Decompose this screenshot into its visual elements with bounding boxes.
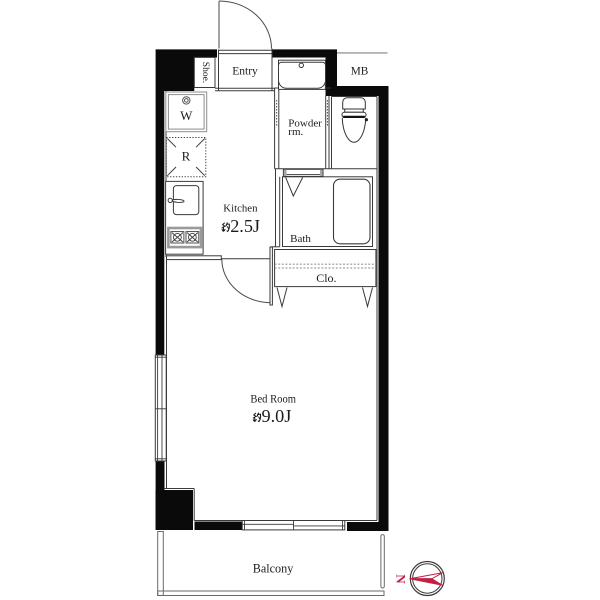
- svg-text:Shoe.: Shoe.: [200, 62, 210, 83]
- svg-text:Bed Room: Bed Room: [250, 392, 296, 406]
- svg-text:Balcony: Balcony: [253, 561, 295, 575]
- svg-text:R: R: [182, 149, 191, 164]
- svg-text:N: N: [393, 574, 408, 584]
- svg-text:Entry: Entry: [232, 66, 258, 78]
- svg-text:9.0J: 9.0J: [262, 406, 292, 426]
- svg-text:W: W: [180, 108, 193, 123]
- svg-text:rm.: rm.: [288, 126, 303, 138]
- svg-text:Kitchen: Kitchen: [223, 202, 258, 214]
- svg-text:2.5J: 2.5J: [230, 216, 260, 236]
- svg-text:MB: MB: [351, 65, 369, 77]
- svg-text:Bath: Bath: [290, 233, 311, 245]
- svg-text:Clo.: Clo.: [316, 271, 336, 285]
